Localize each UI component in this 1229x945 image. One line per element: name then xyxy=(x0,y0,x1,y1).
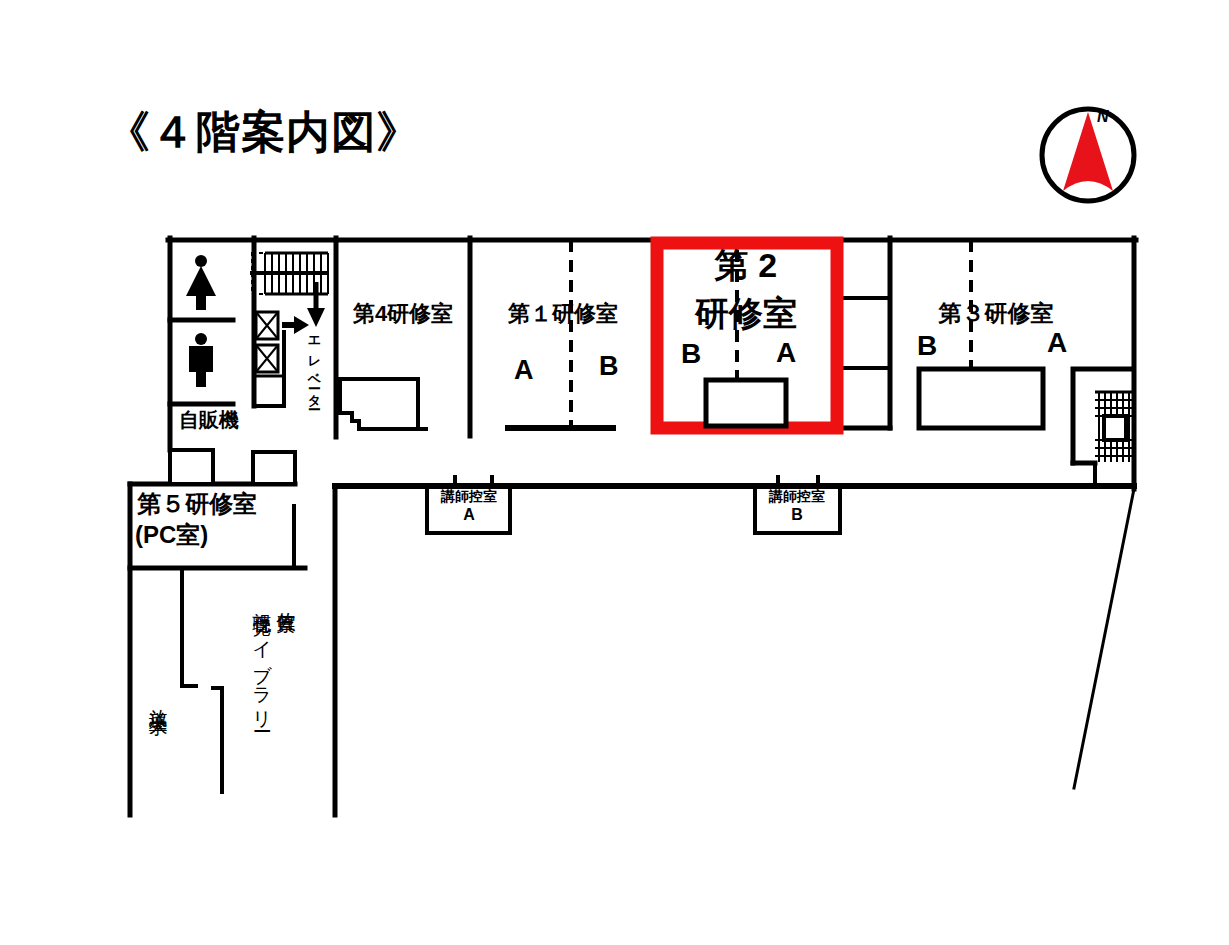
room2-label-line1: 第 2 xyxy=(661,247,831,284)
room5-label: 第５研修室 xyxy=(137,491,257,517)
room2-podium xyxy=(706,380,786,426)
vending-machine-label: 自販機 xyxy=(179,409,239,431)
wall-library-b xyxy=(213,688,222,792)
room1-section-a: A xyxy=(514,356,534,386)
room5-sublabel: (PC室) xyxy=(135,522,208,548)
library-label: 佐賀県 視聴覚ライブラリー xyxy=(250,597,298,723)
elevator-shafts xyxy=(256,312,278,372)
womens-restroom-icon xyxy=(186,255,216,310)
room4-label: 第4研修室 xyxy=(336,302,470,326)
instructor-room-b-letter: B xyxy=(757,506,837,524)
room3-podium xyxy=(919,369,1043,428)
stairs-lower-landing xyxy=(1104,416,1126,440)
instructor-room-a-label: 講師控室 xyxy=(431,489,507,504)
room3-label: 第３研修室 xyxy=(916,301,1076,326)
wall-diagonal xyxy=(1074,489,1134,788)
compass xyxy=(1042,109,1134,201)
instructor-room-a-letter: A xyxy=(431,506,507,524)
hall-square-1 xyxy=(170,450,213,484)
open-university-label: 放送大学 xyxy=(145,694,171,706)
page-title: 《４階案内図》 xyxy=(106,108,421,156)
room2-section-b: B xyxy=(681,339,701,370)
room1-label: 第１研修室 xyxy=(488,302,638,326)
room3-section-b: B xyxy=(917,331,937,362)
room3-section-a: A xyxy=(1047,328,1067,359)
floor-guide-page: 《４階案内図》 N 第4研修室 第１研修室 A B 第 2 研修室 B A 第３… xyxy=(0,0,1229,945)
room1-section-b: B xyxy=(599,352,619,382)
mens-restroom-icon xyxy=(189,333,213,387)
room2-section-a: A xyxy=(776,338,796,369)
elevator-label: エレベーター xyxy=(305,328,323,405)
hall-square-2 xyxy=(253,452,295,484)
instructor-room-b-label: 講師控室 xyxy=(757,489,837,504)
room2-label-line2: 研修室 xyxy=(661,295,831,332)
wall-library-a xyxy=(182,568,196,686)
compass-n-label: N xyxy=(1097,108,1109,126)
room4-podium xyxy=(340,379,418,429)
stairs-down-arrow xyxy=(307,282,325,327)
